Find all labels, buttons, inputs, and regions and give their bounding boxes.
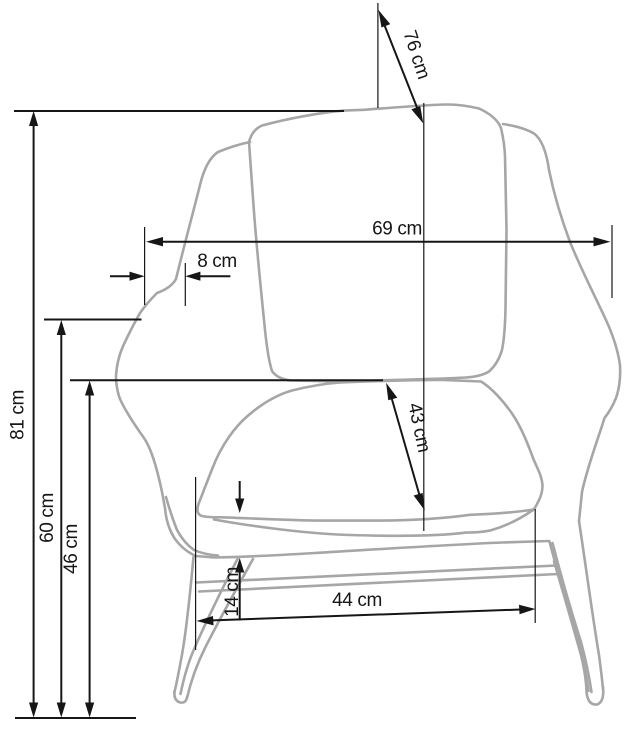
- svg-text:46 cm: 46 cm: [61, 524, 82, 574]
- svg-text:14 cm: 14 cm: [222, 567, 243, 617]
- svg-text:69 cm: 69 cm: [372, 219, 422, 240]
- svg-text:60 cm: 60 cm: [37, 493, 58, 543]
- svg-text:43 cm: 43 cm: [403, 401, 434, 454]
- svg-text:8 cm: 8 cm: [197, 251, 237, 272]
- svg-text:44 cm: 44 cm: [332, 590, 382, 611]
- svg-text:81 cm: 81 cm: [8, 390, 29, 440]
